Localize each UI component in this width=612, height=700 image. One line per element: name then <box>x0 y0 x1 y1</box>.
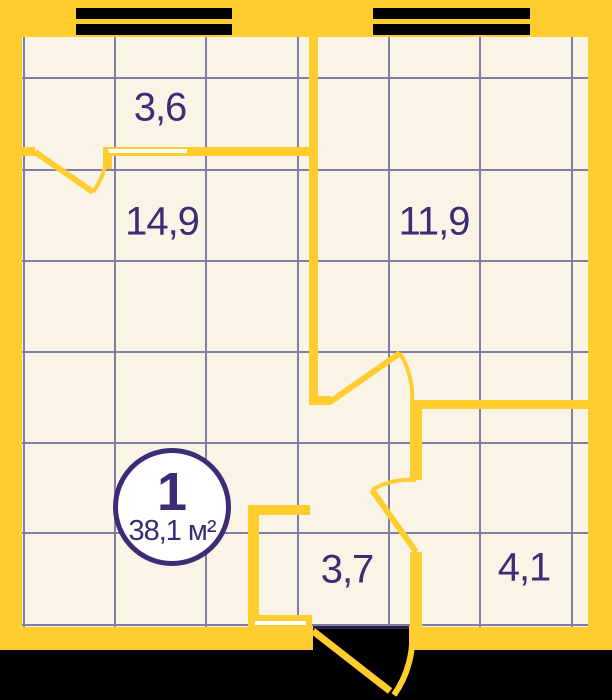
wall-segment <box>20 147 35 156</box>
room-area-label-11-9: 11,9 <box>399 200 470 245</box>
entrance-threshold <box>313 626 409 629</box>
window-bar-icon <box>373 24 530 35</box>
wall-segment <box>309 396 331 405</box>
window-bar-icon <box>373 8 530 19</box>
window-opening <box>108 149 187 153</box>
room-area-label-3-6: 3,6 <box>134 86 187 131</box>
window-bar-icon <box>76 8 232 19</box>
wall-segment <box>410 552 422 628</box>
room-area-label-4-1: 4,1 <box>498 546 551 591</box>
window-bar-icon <box>76 24 232 35</box>
floor-plan-drawing <box>0 0 612 700</box>
wall-segment <box>309 37 318 403</box>
wall-segment <box>410 400 588 409</box>
niche-opening <box>255 621 306 625</box>
unit-number: 1 <box>157 470 187 516</box>
apartment-floor-plan: 3,6 14,9 11,9 3,7 4,1 1 38,1 м² <box>0 0 612 700</box>
wall-segment <box>248 505 259 627</box>
room-area-label-3-7: 3,7 <box>321 548 374 593</box>
wall-segment <box>410 400 422 480</box>
floor-area <box>22 37 588 627</box>
unit-badge: 1 38,1 м² <box>113 448 231 566</box>
room-area-label-14-9: 14,9 <box>125 200 199 245</box>
unit-total-area: 38,1 м² <box>128 517 215 546</box>
